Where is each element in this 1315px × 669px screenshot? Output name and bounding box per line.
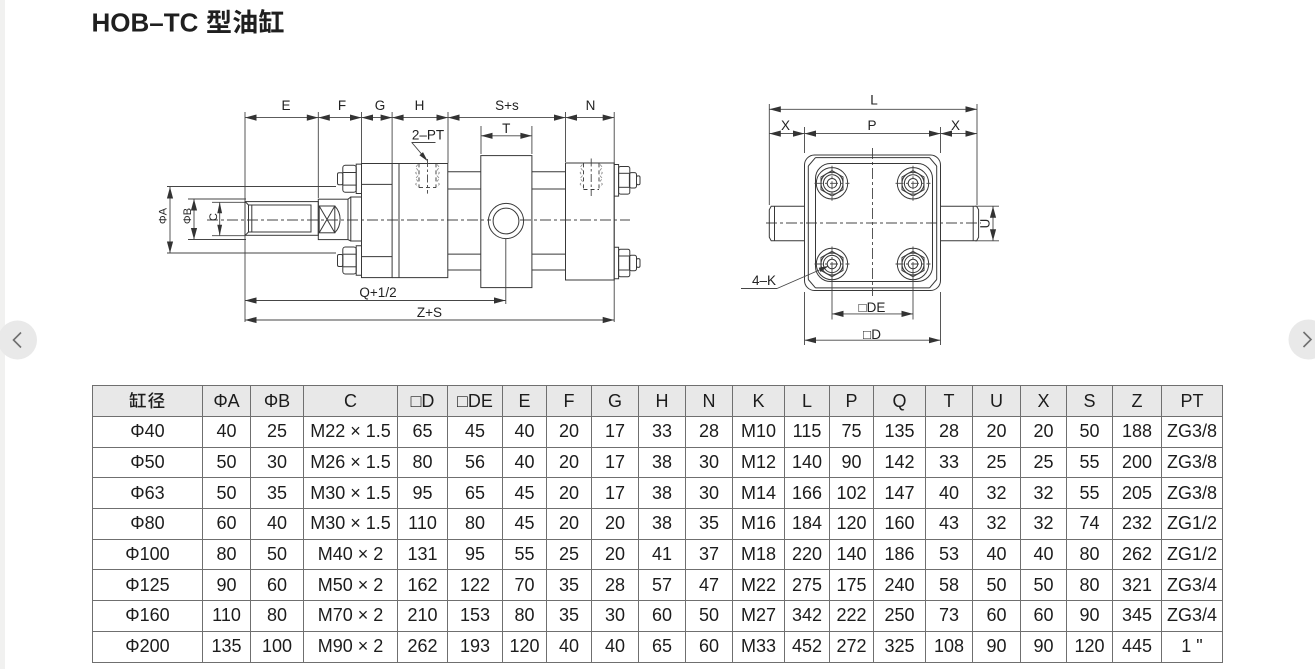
svg-text:2–PT: 2–PT <box>412 128 444 143</box>
svg-text:4–K: 4–K <box>752 273 776 288</box>
svg-text:N: N <box>586 98 596 113</box>
svg-text:X: X <box>781 118 790 133</box>
svg-text:P: P <box>867 118 876 133</box>
svg-text:□D: □D <box>863 327 881 342</box>
svg-text:Q+1/2: Q+1/2 <box>359 285 396 300</box>
svg-text:S+s: S+s <box>495 98 519 113</box>
svg-text:Z+S: Z+S <box>417 305 442 320</box>
svg-text:L: L <box>870 93 878 108</box>
svg-text:H: H <box>415 98 425 113</box>
svg-text:E: E <box>281 98 290 113</box>
svg-text:T: T <box>502 121 510 136</box>
svg-text:G: G <box>375 98 386 113</box>
svg-text:□DE: □DE <box>859 300 886 315</box>
svg-text:F: F <box>338 98 346 113</box>
svg-text:HOB–TC: HOB–TC <box>92 8 199 38</box>
svg-text:X: X <box>951 118 960 133</box>
